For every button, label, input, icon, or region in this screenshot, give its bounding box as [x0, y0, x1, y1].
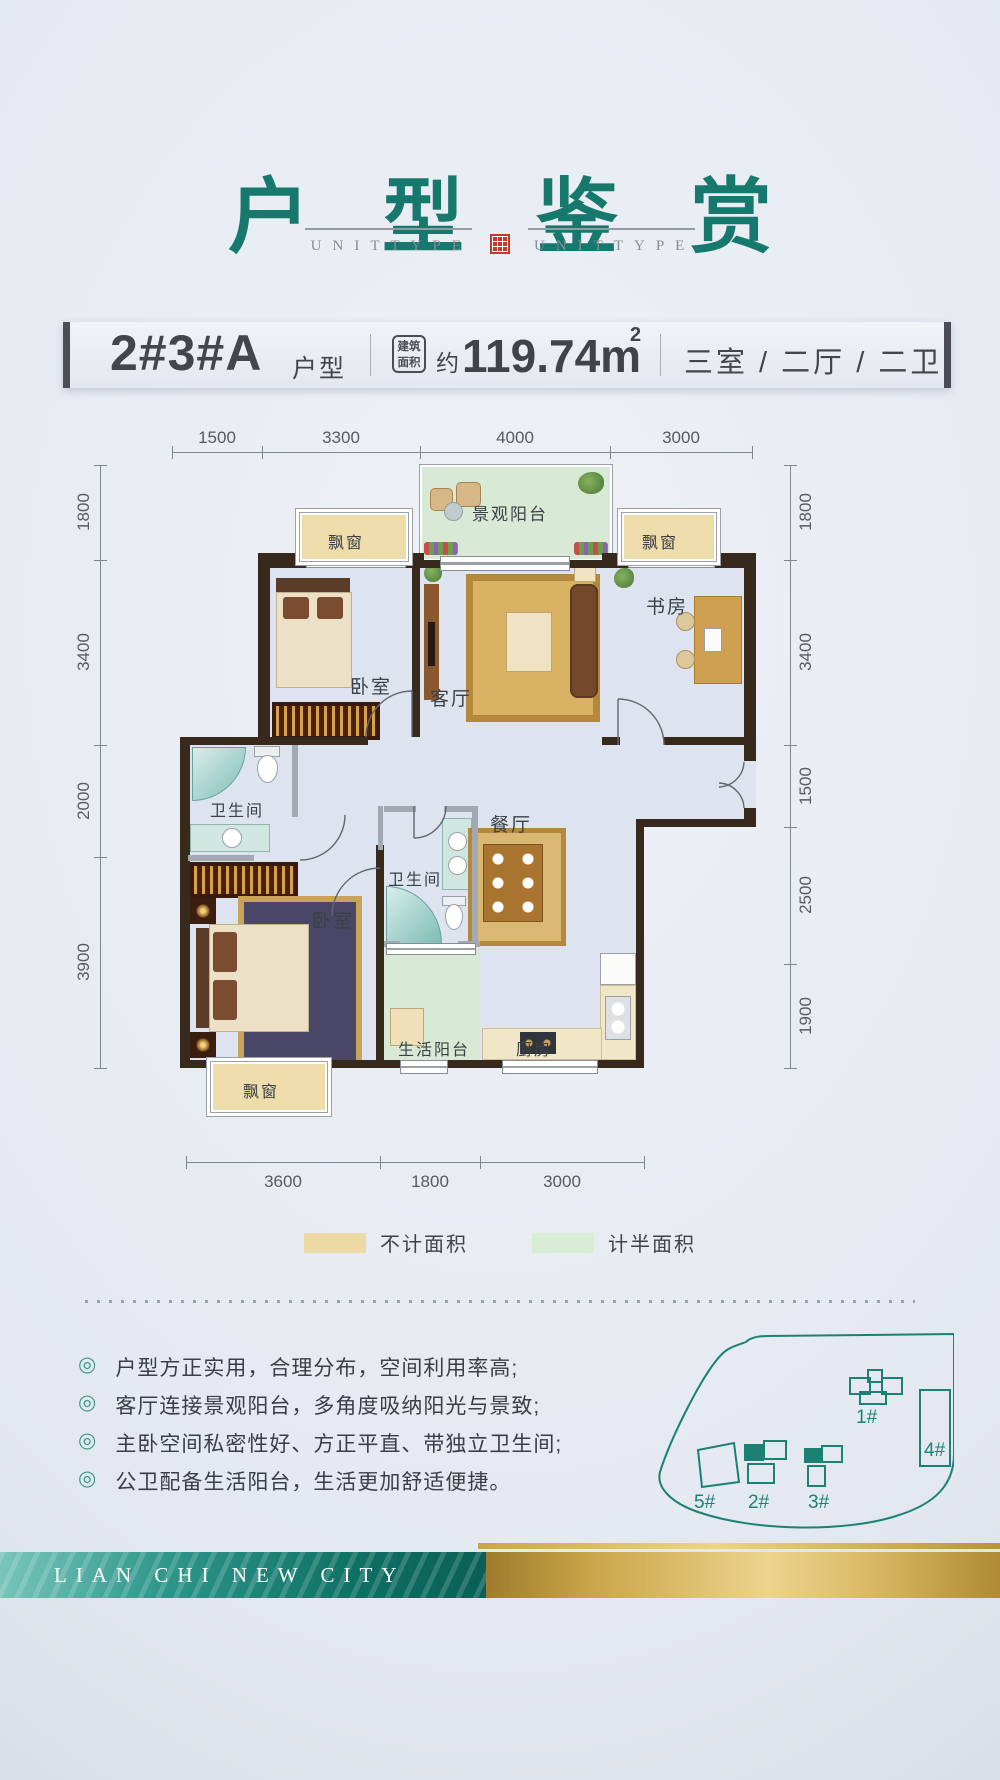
bullet-icon: ◎ [78, 1352, 97, 1377]
flower-box-icon [424, 542, 458, 555]
sink-icon [605, 996, 631, 1040]
window-icon [400, 1060, 448, 1074]
brand-name: LIAN CHI NEW CITY [0, 1552, 486, 1598]
room-label-view-balcony: 景观阳台 [472, 500, 548, 525]
plant-icon [614, 568, 634, 588]
legend-item-half: 计半面积 [532, 1228, 696, 1257]
room-label-bay: 飘窗 [243, 1078, 279, 1102]
room-label-bedroom: 卧室 [312, 906, 354, 933]
bed-headboard-icon [276, 578, 350, 592]
site-map: 1# 2# 3# 4# 5# [598, 1320, 954, 1558]
dining-table-icon [483, 844, 543, 922]
area-exponent: 2 [630, 324, 641, 347]
window-icon [502, 1060, 598, 1074]
coffee-table-icon [506, 612, 552, 672]
divider [370, 334, 371, 376]
unit-name: 2#3#A [110, 324, 262, 382]
area-approx: 约 [436, 344, 459, 378]
building-2-label: 2# [748, 1492, 770, 1513]
bullet-icon: ◎ [78, 1390, 97, 1415]
building-4-label: 4# [924, 1440, 946, 1461]
divider [660, 334, 661, 376]
pillow-icon [283, 597, 309, 619]
building-3-footprint [804, 1446, 842, 1486]
balcony-table-icon [444, 502, 463, 521]
bullet-icon: ◎ [78, 1466, 97, 1491]
basin-icon [448, 856, 467, 875]
legend-item-excluded: 不计面积 [304, 1228, 468, 1257]
room-label-bedroom: 卧室 [350, 672, 392, 699]
room-label-bay: 飘窗 [642, 529, 678, 553]
nightstand-icon [190, 1032, 216, 1058]
room-label-dining: 餐厅 [490, 810, 532, 837]
basin-icon [448, 832, 467, 851]
dotted-separator [85, 1300, 915, 1303]
poster-page: 户型鉴赏 UNITTYPE UNITTYPE 2#3#A 户型 建筑 面积 约 … [0, 0, 1000, 1780]
tv-icon [428, 622, 435, 666]
room-label-bath: 卫生间 [210, 797, 264, 821]
sofa-icon [570, 584, 598, 698]
feature-item: ◎ 公卫配备生活阳台，生活更加舒适便捷。 [78, 1466, 511, 1496]
building-3-label: 3# [808, 1492, 830, 1513]
pillow-icon [317, 597, 343, 619]
sliding-door-icon [440, 556, 570, 571]
banner-gold-band [486, 1552, 1000, 1598]
room-label-bath: 卫生间 [388, 866, 442, 890]
area-badge: 建筑 面积 [392, 335, 426, 373]
subtitle-left: UNITTYPE [305, 228, 472, 255]
room-layout: 三室 / 二厅 / 二卫 [684, 339, 942, 381]
paper-icon [704, 628, 722, 652]
bullet-icon: ◎ [78, 1428, 97, 1453]
area-legend: 不计面积 计半面积 [0, 1228, 1000, 1257]
footer-banner: LIAN CHI NEW CITY [0, 1552, 1000, 1598]
room-label-study: 书房 [646, 592, 688, 619]
building-5-label: 5# [694, 1492, 716, 1513]
feature-item: ◎ 客厅连接景观阳台，多角度吸纳阳光与景致; [78, 1390, 540, 1420]
legend-swatch-excluded [304, 1233, 366, 1253]
chair-icon [676, 650, 695, 669]
pillow-icon [213, 932, 237, 972]
wardrobe-icon [272, 702, 380, 740]
legend-swatch-half [532, 1233, 594, 1253]
basin-icon [222, 828, 242, 848]
subtitle-right: UNITTYPE [528, 228, 695, 255]
unit-info-bar: 2#3#A 户型 建筑 面积 约 119.74m 2 三室 / 二厅 / 二卫 [63, 322, 951, 388]
area-value: 119.74m [462, 329, 641, 383]
unit-name-suffix: 户型 [292, 349, 346, 385]
building-2-footprint [744, 1441, 786, 1483]
fridge-icon [600, 953, 636, 985]
building-5-footprint [698, 1443, 739, 1487]
feature-item: ◎ 主卧空间私密性好、方正平直、带独立卫生间; [78, 1428, 562, 1458]
plant-icon [578, 472, 604, 494]
building-1-label: 1# [856, 1407, 878, 1428]
nightstand-icon [190, 898, 216, 924]
window-icon [386, 943, 476, 955]
bed-headboard-icon [196, 928, 210, 1028]
room-label-bay: 飘窗 [328, 529, 364, 553]
banner-teal-band: LIAN CHI NEW CITY [0, 1552, 486, 1598]
feature-item: ◎ 户型方正实用，合理分布，空间利用率高; [78, 1352, 518, 1382]
pillow-icon [213, 980, 237, 1020]
seal-icon [490, 234, 510, 254]
room-label-kitchen: 厨房 [516, 1036, 552, 1060]
wardrobe-icon [190, 862, 298, 898]
subtitle-row: UNITTYPE UNITTYPE [0, 228, 1000, 255]
gold-accent-line [478, 1543, 1000, 1549]
building-1-footprint [850, 1370, 902, 1404]
room-label-living: 客厅 [430, 684, 472, 711]
room-label-service-balcony: 生活阳台 [398, 1036, 470, 1060]
